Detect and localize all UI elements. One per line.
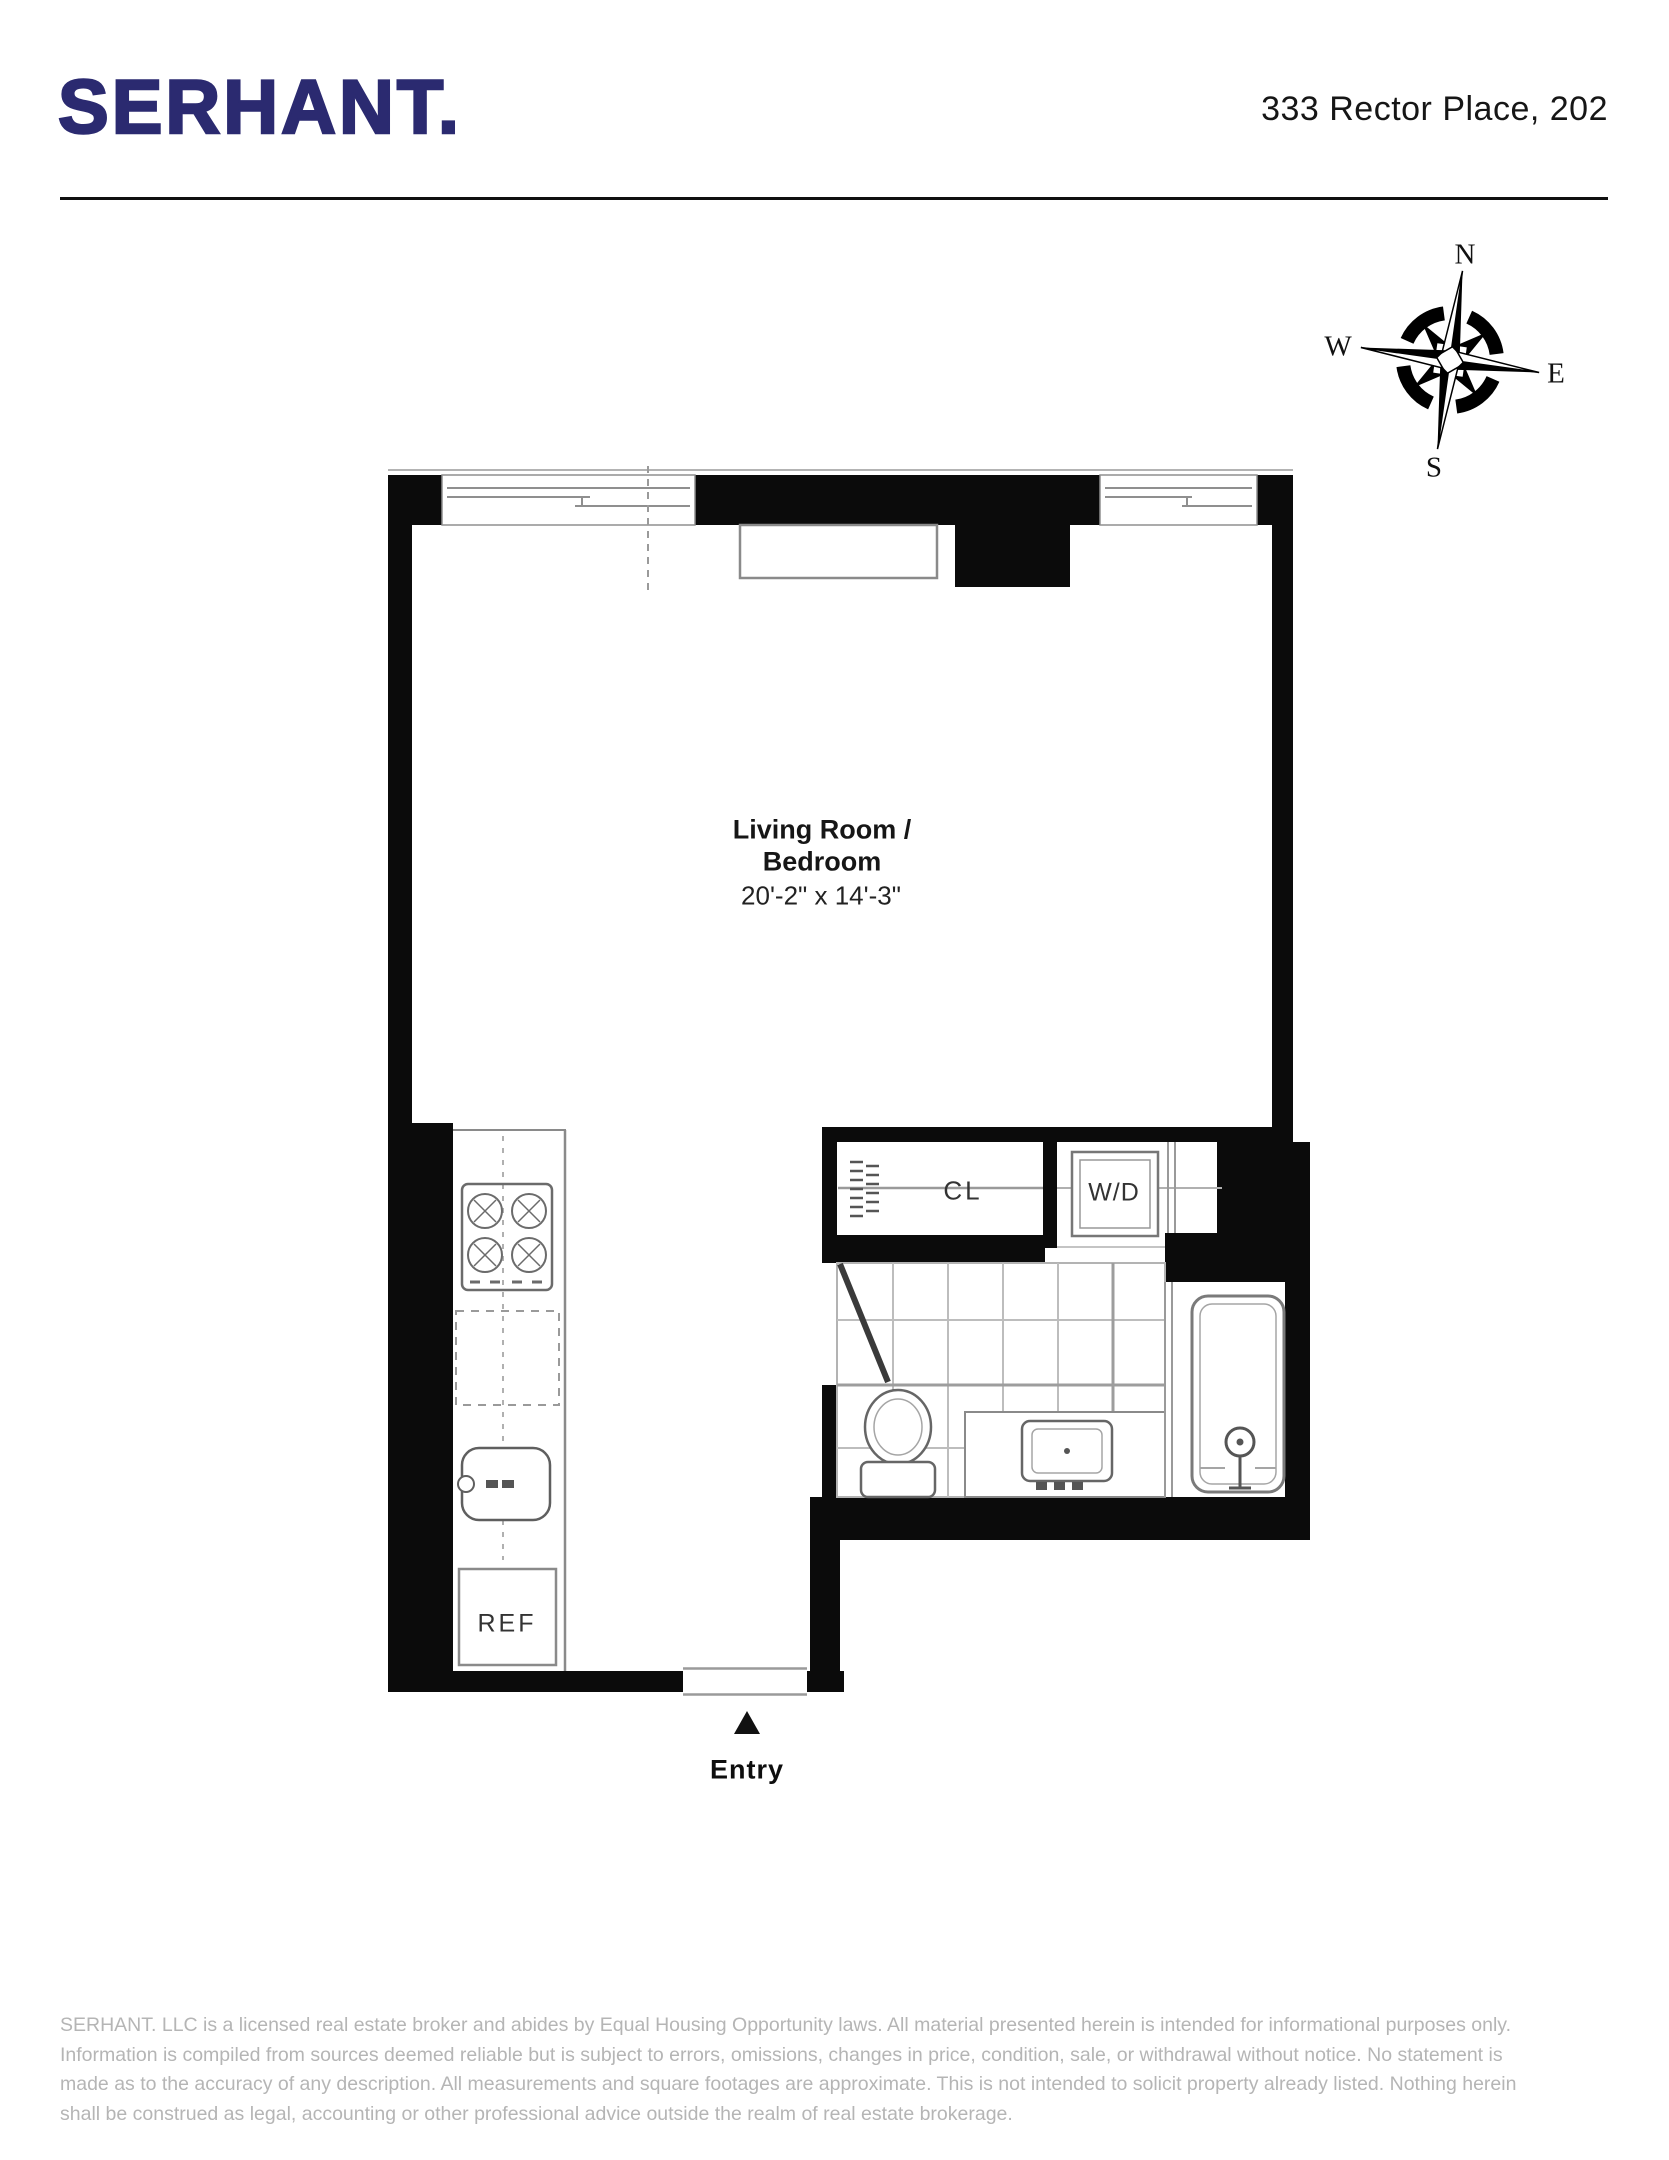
compass-label-east: E bbox=[1547, 358, 1565, 391]
wall bbox=[822, 1235, 1045, 1263]
closet bbox=[838, 1162, 1043, 1216]
toilet-tank bbox=[861, 1462, 935, 1497]
entry-arrow-icon bbox=[734, 1711, 760, 1734]
faucet bbox=[458, 1476, 474, 1492]
living-room-dimensions: 20'-2" x 14'-3" bbox=[741, 881, 901, 912]
bathtub bbox=[1165, 1282, 1284, 1497]
closet-label: CL bbox=[943, 1176, 982, 1207]
wall-column bbox=[955, 523, 1070, 587]
wall bbox=[1165, 1233, 1310, 1282]
faucet-handle bbox=[1054, 1482, 1065, 1490]
washer-dryer-label: W/D bbox=[1088, 1179, 1140, 1208]
wall bbox=[810, 1497, 1310, 1540]
compass-label-south: S bbox=[1426, 452, 1442, 485]
living-room-label-line1: Living Room / bbox=[733, 815, 912, 846]
faucet-handle bbox=[502, 1480, 514, 1488]
floorplan-drawing bbox=[0, 0, 1669, 2160]
wall bbox=[388, 1671, 683, 1692]
wall bbox=[1257, 475, 1293, 525]
stove-icon bbox=[462, 1184, 552, 1290]
wall bbox=[810, 1540, 840, 1692]
kitchen-sink-icon bbox=[458, 1448, 550, 1520]
bathtub-icon bbox=[1192, 1296, 1284, 1492]
kitchen-counter bbox=[453, 1130, 566, 1671]
compass-cardinal-points bbox=[1348, 258, 1551, 461]
refrigerator-label: REF bbox=[478, 1610, 537, 1639]
window-frame bbox=[442, 475, 695, 525]
tub-drain-center bbox=[1237, 1439, 1244, 1446]
wall bbox=[388, 1123, 453, 1692]
entry-label: Entry bbox=[710, 1755, 784, 1786]
window-left bbox=[442, 475, 695, 525]
wall bbox=[1272, 523, 1293, 1155]
wall bbox=[1043, 1127, 1057, 1248]
vanity-icon bbox=[965, 1412, 1165, 1497]
dishwasher-icon bbox=[456, 1311, 559, 1405]
stove-body bbox=[462, 1184, 552, 1290]
toilet-icon bbox=[861, 1390, 935, 1497]
entry-door bbox=[683, 1667, 807, 1696]
faucet-handle bbox=[1072, 1482, 1083, 1490]
compass-rose-icon bbox=[1348, 258, 1551, 461]
compass-label-north: N bbox=[1455, 239, 1476, 272]
wall-door-stub bbox=[822, 1385, 837, 1497]
toilet-bowl bbox=[865, 1390, 931, 1464]
faucet-handle bbox=[486, 1480, 498, 1488]
window-right bbox=[1100, 475, 1257, 525]
compass-label-west: W bbox=[1324, 331, 1351, 364]
wall bbox=[695, 475, 1100, 525]
wall bbox=[388, 475, 412, 1125]
bathroom bbox=[837, 1263, 1284, 1497]
sink-drain bbox=[1064, 1448, 1070, 1454]
faucet-handle bbox=[1036, 1482, 1047, 1490]
floorplan-page: SERHANT. 333 Rector Place, 202 bbox=[0, 0, 1669, 2160]
legal-disclaimer: SERHANT. LLC is a licensed real estate b… bbox=[60, 2011, 1552, 2129]
living-room-label-line2: Bedroom bbox=[763, 847, 882, 878]
burner-grate bbox=[474, 1200, 540, 1266]
entry-door-slab bbox=[683, 1667, 807, 1696]
convector-unit bbox=[740, 525, 937, 578]
window-frame bbox=[1100, 475, 1257, 525]
